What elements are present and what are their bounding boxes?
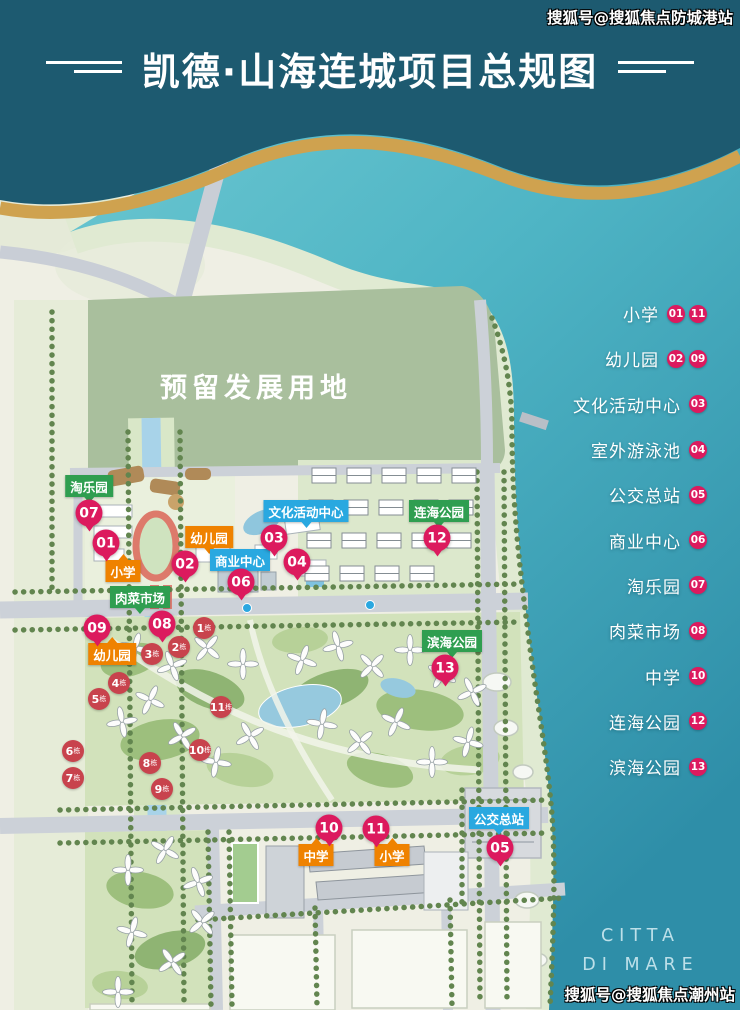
- building-number-badge: 4栋: [108, 672, 130, 694]
- building-number-badge: 10栋: [189, 739, 211, 761]
- legend-item-label: 公交总站: [609, 482, 681, 507]
- building-number-badge: 11栋: [210, 696, 232, 718]
- legend-item: 文化活动中心03: [573, 382, 707, 427]
- legend: 小学0111幼儿园0209文化活动中心03室外游泳池04公交总站05商业中心06…: [573, 291, 707, 789]
- legend-item: 幼儿园0209: [573, 336, 707, 381]
- building-number-badge: 5栋: [88, 688, 110, 710]
- place-label: 幼儿园: [185, 526, 233, 548]
- legend-number-badge: 11: [689, 305, 707, 323]
- legend-item: 肉菜市场08: [573, 608, 707, 653]
- building-number-badge: 8栋: [139, 752, 161, 774]
- legend-item-label: 肉菜市场: [609, 618, 681, 643]
- legend-item: 连海公园12: [573, 699, 707, 744]
- building-number-badge: 6栋: [62, 740, 84, 762]
- facility-marker-13: 13: [432, 655, 459, 682]
- legend-item-label: 连海公园: [609, 709, 681, 734]
- legend-number-badge: 06: [689, 531, 707, 549]
- header: 凯德·山海连城项目总规图: [0, 22, 740, 114]
- legend-number-badge: 08: [689, 622, 707, 640]
- legend-item: 公交总站05: [573, 472, 707, 517]
- facility-marker-05: 05: [487, 835, 514, 862]
- legend-item: 中学10: [573, 653, 707, 698]
- legend-item: 商业中心06: [573, 517, 707, 562]
- watermark-bottom-right: 搜狐号@搜狐焦点潮州站: [564, 983, 735, 1005]
- title-flourish-right-icon: [618, 57, 694, 79]
- facility-marker-08: 08: [149, 611, 176, 638]
- legend-item: 滨海公园13: [573, 744, 707, 789]
- title-flourish-left-icon: [46, 57, 122, 79]
- building-number-badge: 2栋: [168, 636, 190, 658]
- masterplan-poster: 凯德·山海连城项目总规图 预留发展用地 CITTA DI MARE 淘乐园小学幼…: [0, 0, 740, 1010]
- facility-marker-07: 07: [76, 500, 103, 527]
- place-label: 滨海公园: [422, 630, 482, 652]
- legend-item: 小学0111: [573, 291, 707, 336]
- legend-number-badge: 03: [689, 395, 707, 413]
- legend-number-badge: 12: [689, 712, 707, 730]
- place-label: 连海公园: [409, 500, 469, 522]
- legend-number-badge: 01: [667, 305, 685, 323]
- place-label: 肉菜市场: [110, 586, 170, 608]
- legend-item-label: 淘乐园: [627, 573, 681, 598]
- legend-number-badge: 04: [689, 441, 707, 459]
- legend-item-label: 中学: [645, 664, 681, 689]
- legend-number-badge: 13: [689, 758, 707, 776]
- legend-item: 室外游泳池04: [573, 427, 707, 472]
- legend-item-label: 室外游泳池: [591, 437, 681, 462]
- legend-item-label: 文化活动中心: [573, 392, 681, 417]
- legend-item-label: 商业中心: [609, 528, 681, 553]
- facility-marker-06: 06: [228, 569, 255, 596]
- facility-marker-11: 11: [363, 816, 390, 843]
- legend-number-badge: 10: [689, 667, 707, 685]
- place-label: 公交总站: [469, 807, 529, 829]
- building-number-badge: 9栋: [151, 778, 173, 800]
- place-label: 文化活动中心: [263, 500, 348, 522]
- legend-number-badge: 02: [667, 350, 685, 368]
- building-number-badge: 1栋: [193, 617, 215, 639]
- page-title: 凯德·山海连城项目总规图: [142, 41, 598, 96]
- legend-number-badge: 07: [689, 576, 707, 594]
- facility-marker-10: 10: [316, 815, 343, 842]
- building-number-badge: 7栋: [62, 767, 84, 789]
- facility-marker-12: 12: [424, 525, 451, 552]
- facility-marker-03: 03: [261, 525, 288, 552]
- facility-marker-01: 01: [93, 530, 120, 557]
- place-label: 淘乐园: [65, 475, 113, 497]
- legend-item-label: 幼儿园: [605, 346, 659, 371]
- facility-marker-09: 09: [84, 615, 111, 642]
- building-number-badge: 3栋: [141, 643, 163, 665]
- legend-number-badge: 05: [689, 486, 707, 504]
- watermark-top-right: 搜狐号@搜狐焦点防城港站: [547, 6, 733, 28]
- legend-number-badge: 09: [689, 350, 707, 368]
- facility-marker-04: 04: [284, 549, 311, 576]
- legend-item: 淘乐园07: [573, 563, 707, 608]
- facility-marker-02: 02: [172, 551, 199, 578]
- legend-item-label: 滨海公园: [609, 754, 681, 779]
- legend-item-label: 小学: [623, 301, 659, 326]
